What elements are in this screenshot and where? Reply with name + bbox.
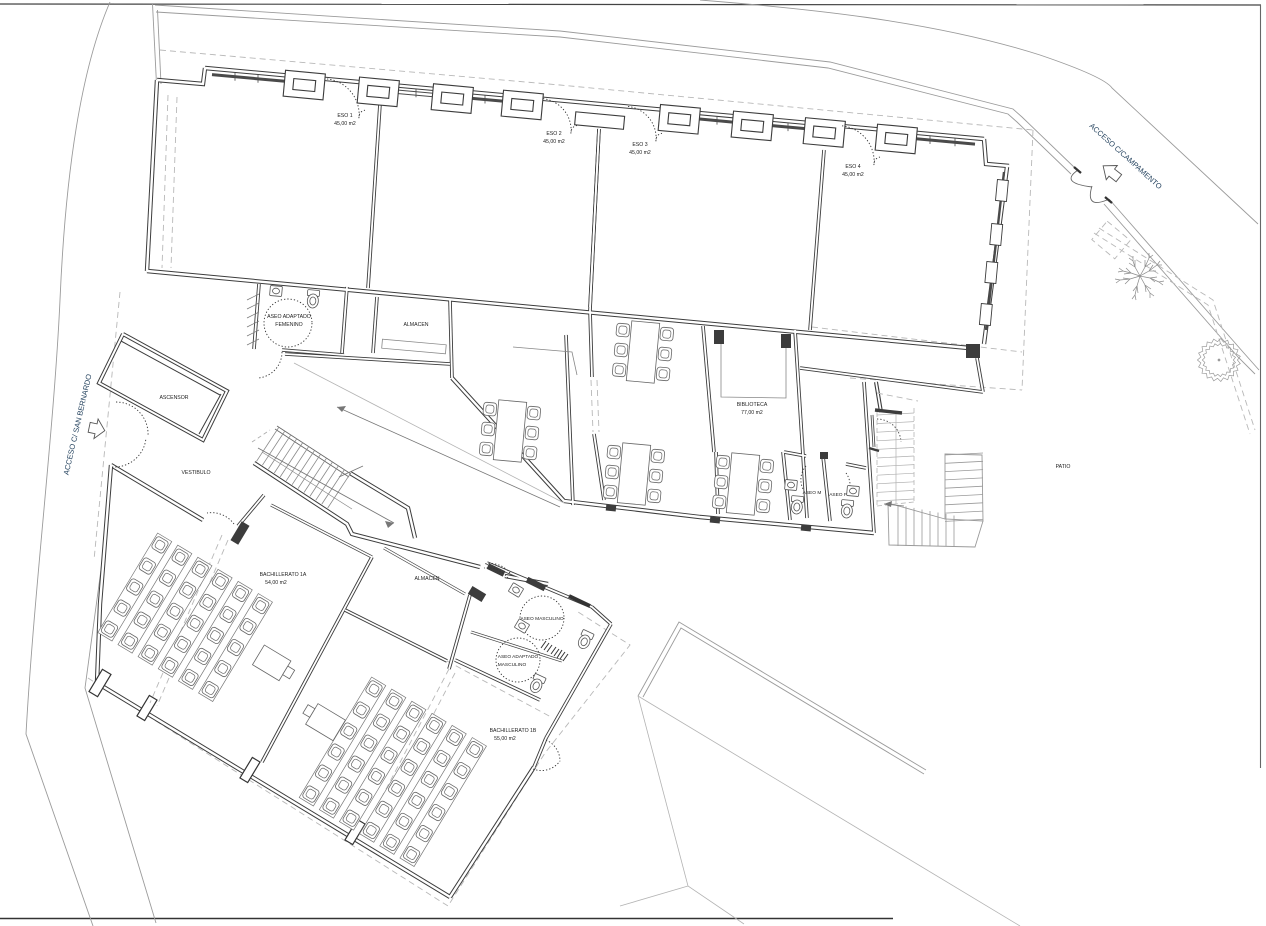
svg-text:BACHILLERATO 1B: BACHILLERATO 1B bbox=[490, 728, 537, 734]
svg-text:ASEO ADAPTADO: ASEO ADAPTADO bbox=[498, 654, 539, 660]
svg-text:ESO 2: ESO 2 bbox=[546, 131, 561, 137]
svg-text:ASEO ADAPTADO: ASEO ADAPTADO bbox=[267, 314, 311, 320]
svg-text:ALMACEN: ALMACEN bbox=[403, 322, 428, 328]
svg-text:45,00 m2: 45,00 m2 bbox=[543, 139, 565, 145]
svg-text:45,00 m2: 45,00 m2 bbox=[629, 150, 651, 156]
svg-text:VESTIBULO: VESTIBULO bbox=[181, 470, 210, 476]
svg-text:BIBLIOTECA: BIBLIOTECA bbox=[737, 402, 768, 408]
svg-text:FEMENINO: FEMENINO bbox=[275, 322, 302, 328]
svg-text:54,00 m2: 54,00 m2 bbox=[265, 580, 287, 586]
svg-text:45,00 m2: 45,00 m2 bbox=[334, 121, 356, 127]
svg-text:45,00 m2: 45,00 m2 bbox=[842, 172, 864, 178]
svg-text:ASCENSOR: ASCENSOR bbox=[159, 395, 188, 401]
svg-text:ASEO M: ASEO M bbox=[803, 490, 822, 496]
svg-text:55,00 m2: 55,00 m2 bbox=[494, 736, 516, 742]
svg-text:BACHILLERATO 1A: BACHILLERATO 1A bbox=[260, 572, 307, 578]
svg-text:PATIO: PATIO bbox=[1056, 464, 1071, 470]
svg-text:ESO 4: ESO 4 bbox=[845, 164, 860, 170]
svg-text:77,00 m2: 77,00 m2 bbox=[741, 410, 763, 416]
svg-text:ASEO F: ASEO F bbox=[829, 492, 847, 498]
svg-text:ASEO MASCULINO: ASEO MASCULINO bbox=[520, 616, 563, 622]
svg-text:ESO 1: ESO 1 bbox=[337, 113, 352, 119]
svg-text:MASCULINO: MASCULINO bbox=[498, 662, 527, 668]
svg-text:ALMACEN: ALMACEN bbox=[414, 576, 439, 582]
svg-text:ESO 3: ESO 3 bbox=[632, 142, 647, 148]
